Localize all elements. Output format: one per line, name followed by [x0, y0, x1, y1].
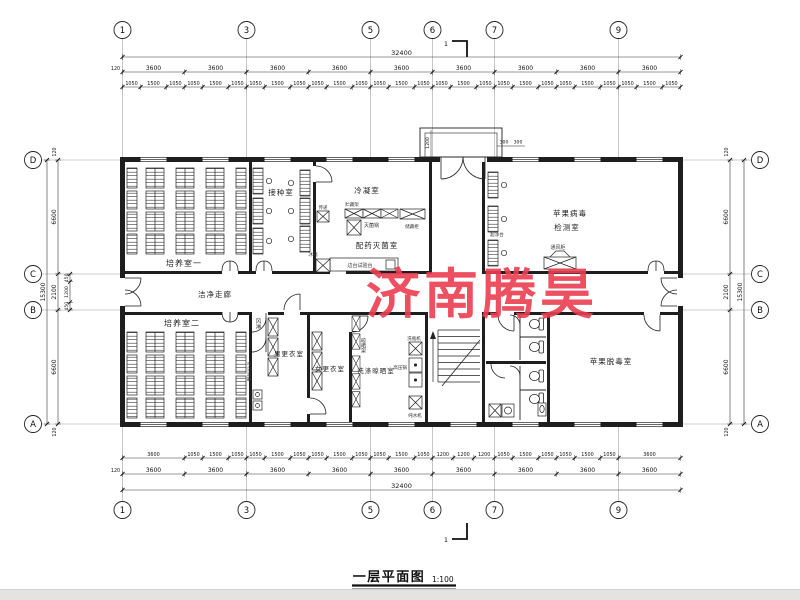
dim-label: 1500 [333, 81, 345, 87]
axis-bubble-label: D [30, 156, 37, 166]
dim-label: 6600 [723, 209, 730, 224]
dim-label: 1500 [271, 81, 283, 87]
dim-label: 1500 [395, 452, 407, 458]
axis-bubble-label: A [757, 420, 763, 430]
dim-label: 1500 [147, 81, 159, 87]
dim-label: 1500 [519, 452, 531, 458]
sink-units [489, 403, 546, 417]
dim-label: 1050 [417, 81, 429, 87]
dim-label: 1050 [603, 81, 615, 87]
dim-label: 120 [724, 147, 730, 156]
dim-col-right-main: 660021006600 [723, 158, 733, 426]
equip-label-hand-sterilizer: 手消毒器 [245, 362, 250, 381]
axis-bubble-label: C [30, 270, 36, 280]
dim-label: 1500 [395, 81, 407, 87]
dim-label: 3600 [643, 452, 655, 458]
storage-cabinet-box [400, 209, 425, 219]
dim-label: 1050 [311, 452, 323, 458]
room-label-condensing: 冷凝室 [354, 185, 380, 195]
axis-bubble-label: 9 [616, 506, 621, 516]
dim-label: 3600 [270, 65, 285, 72]
dim-label: 1500 [457, 81, 469, 87]
dim-label: 1050 [169, 81, 181, 87]
equip-label-air-shower: 风淋 [254, 318, 260, 329]
equip-label-drying-rack: 晾晒架 [360, 338, 365, 353]
dim-col-left-overall: 15300 [40, 158, 50, 426]
room-label-washing: 洗涤晾晒室 [357, 366, 395, 375]
axis-bubble-label: 5 [368, 26, 373, 36]
equip-label-pressure-pot: 高压锅 [393, 364, 407, 371]
axis-bubble-label: A [30, 420, 36, 430]
dim-label: 15300 [737, 282, 744, 301]
water-purifier-box [409, 396, 422, 409]
room-label-virus-test-2: 检测室 [554, 222, 580, 232]
dim-col-right-overall: 15300 [737, 158, 747, 426]
dim-label: 6600 [51, 209, 58, 224]
room-label-virus-test-1: 苹果病毒 [553, 208, 587, 218]
floor-plan-page: 32400 3600360036003600360036003600360036… [0, 0, 800, 600]
room-label-inoculation: 接种室 [268, 187, 294, 197]
room-label-culture2: 培养室二 [164, 318, 200, 328]
dim-label: 3600 [394, 65, 409, 72]
dim-row-top-bays: 360036003600360036003600360036003600 [121, 65, 683, 75]
dim-label: 1050 [187, 452, 199, 458]
dim-label: 120 [52, 427, 58, 436]
dim-label: 1050 [311, 81, 323, 87]
fridge-box [316, 259, 330, 272]
dim-label: 1050 [497, 81, 509, 87]
dim-label: 120 [111, 468, 120, 474]
footer-bar [0, 589, 800, 600]
dim-label: 1050 [231, 81, 243, 87]
dim-label: 120 [724, 427, 730, 436]
drawing-title: 一层平面图 [353, 570, 426, 585]
pass-box [317, 211, 329, 222]
dim-label: 1050 [541, 81, 553, 87]
room-label-prep: 配药灭菌室 [356, 240, 399, 250]
dim-label: 120 [52, 147, 58, 156]
axis-bubble-label: B [757, 306, 763, 316]
dim-label: 1050 [293, 81, 305, 87]
dim-row-bottom-overall: 32400 [121, 482, 683, 493]
dim-label: 1500 [519, 81, 531, 87]
dim-label: 1500 [581, 81, 593, 87]
dim-label: 1200 [437, 452, 449, 458]
autoclave-box [347, 220, 361, 235]
dim-label: 3600 [456, 467, 471, 474]
dim-label: 1050 [373, 81, 385, 87]
inoculation-benches [253, 168, 310, 254]
axis-bubble-label: 5 [368, 506, 373, 516]
title-block: 一层平面图 1:100 [352, 570, 456, 589]
room-label-culture1: 培养室一 [166, 258, 202, 268]
dim-label: 1050 [355, 81, 367, 87]
equip-label-water-purifier: 纯水机 [408, 412, 422, 419]
dim-label: 1050 [435, 81, 447, 87]
axis-bubble-label: 9 [616, 26, 621, 36]
section-mark-bottom: 1 [444, 523, 467, 544]
equip-label-fridge: 冰箱 [308, 251, 318, 258]
culture-room2-racks [127, 332, 246, 418]
dim-label: 450 [64, 302, 70, 311]
dim-label: 32400 [391, 482, 412, 490]
dim-label: 1050 [559, 81, 571, 87]
dim-label: 1050 [559, 452, 571, 458]
dim-label: 1500 [209, 81, 221, 87]
dim-label: 6600 [51, 359, 58, 374]
dim-label: 1050 [603, 452, 615, 458]
dim-row-bottom-bays: 360036003600360036003600360036003600 [121, 467, 683, 477]
dim-label: 120 [111, 66, 120, 72]
axis-bubble-label: 1 [120, 506, 125, 516]
changing-washing-equipment [253, 316, 422, 410]
room-label-corridor: 洁净走廊 [198, 289, 232, 299]
dim-label: 1200 [478, 452, 490, 458]
bottle-washer-box [409, 342, 422, 355]
hand-sterilizer-units [253, 390, 262, 410]
dim-label: 1050 [541, 452, 553, 458]
equip-label-pass-box: 传递 [319, 204, 328, 211]
section-mark-label: 1 [444, 40, 448, 48]
dim-label: 3600 [332, 65, 347, 72]
axis-bubble-label: 3 [244, 26, 249, 36]
axis-bubble-label: D [757, 156, 764, 166]
entrance-porch [420, 128, 525, 157]
dim-label: 1050 [231, 452, 243, 458]
prep-bench-row [345, 209, 398, 218]
dim-label: 1050 [373, 452, 385, 458]
dim-label: 3600 [394, 467, 409, 474]
toilets [489, 315, 546, 420]
axis-bubble-label: B [30, 306, 36, 316]
dim-label: 1050 [187, 81, 199, 87]
pressure-pot-boxes [409, 358, 422, 387]
axis-bubble-label: 6 [430, 506, 435, 516]
dim-label: 1500 [581, 452, 593, 458]
equip-label-bottle-washer: 洗瓶机 [407, 335, 421, 342]
dim-label: 1050 [621, 81, 633, 87]
dim-row-top-windows: 1050150010501050150010501050150010501050… [121, 81, 683, 90]
dim-label: 3600 [146, 467, 161, 474]
axis-bubble-label: 3 [244, 506, 249, 516]
dim-label: 1050 [125, 81, 137, 87]
dim-label: 1500 [271, 452, 283, 458]
room-label-women-change: 女更衣室 [315, 364, 345, 373]
dim-label: 6600 [723, 359, 730, 374]
dim-label: 3600 [580, 467, 595, 474]
axis-bubble-label: 6 [430, 26, 435, 36]
dim-col-left-sub: 4501200450 [64, 272, 73, 312]
axis-bubble-label: 7 [492, 506, 497, 516]
room-label-men-change: 男更衣室 [274, 349, 304, 358]
axis-bubble-label: C [757, 270, 763, 280]
porch-dims: 1200 300 300 [425, 137, 522, 149]
dim-label: 3600 [580, 65, 595, 72]
dim-label: 300 [500, 140, 509, 146]
watermark-text: 济南腾昊 [366, 250, 598, 329]
dim-label: 3600 [456, 65, 471, 72]
culture-room1-racks [127, 168, 246, 254]
dim-label: 3600 [642, 467, 657, 474]
equip-label-autoclave: 灭菌锅 [364, 222, 379, 229]
dim-label: 1050 [417, 452, 429, 458]
dim-label: 1200 [425, 137, 431, 149]
axis-bubble-label: 7 [492, 26, 497, 36]
dim-label: 3600 [208, 65, 223, 72]
dim-label: 3600 [146, 65, 161, 72]
staircase [430, 330, 480, 386]
dim-label: 1500 [333, 452, 345, 458]
dim-label: 1200 [457, 452, 469, 458]
dim-label: 1050 [497, 452, 509, 458]
section-mark-top: 1 [444, 40, 467, 57]
dim-label: 1050 [249, 81, 261, 87]
dim-label: 1050 [665, 81, 677, 87]
dim-label: 1200 [64, 286, 70, 298]
dim-label: 1050 [249, 452, 261, 458]
dim-row-top-overall: 32400 [121, 49, 683, 60]
dim-col-left-main: 660021006600 [51, 158, 61, 426]
dim-label: 3600 [642, 65, 657, 72]
axis-bubble-label: 1 [120, 26, 125, 36]
dim-label: 15300 [40, 282, 47, 301]
drawing-scale: 1:100 [432, 575, 454, 584]
dim-label: 3600 [270, 467, 285, 474]
dim-label: 450 [64, 273, 70, 282]
dim-label: 2100 [723, 284, 730, 299]
dim-label: 32400 [391, 49, 412, 57]
dim-label: 300 [514, 140, 523, 146]
section-mark-label: 1 [444, 536, 448, 544]
equip-label-clean-bench: 超净台 [490, 231, 504, 238]
dim-label: 3600 [332, 467, 347, 474]
dim-label: 3600 [147, 452, 159, 458]
dim-label: 1500 [209, 452, 221, 458]
room-label-detox: 苹果脱毒室 [590, 356, 633, 366]
dim-label: 1050 [479, 81, 491, 87]
dim-label: 3600 [208, 467, 223, 474]
dim-label: 3600 [518, 65, 533, 72]
equip-label-storage-rack: 贮藏架 [345, 201, 359, 208]
dim-label: 2100 [51, 284, 58, 299]
dim-label: 3600 [518, 467, 533, 474]
equip-label-storage-cabinet: 储藏柜 [405, 223, 419, 230]
dim-label: 1050 [293, 452, 305, 458]
dim-label: 1050 [355, 452, 367, 458]
dim-row-bottom-detail: 3600105015001050105015001050105015001050… [121, 452, 683, 461]
dim-label: 1500 [643, 81, 655, 87]
